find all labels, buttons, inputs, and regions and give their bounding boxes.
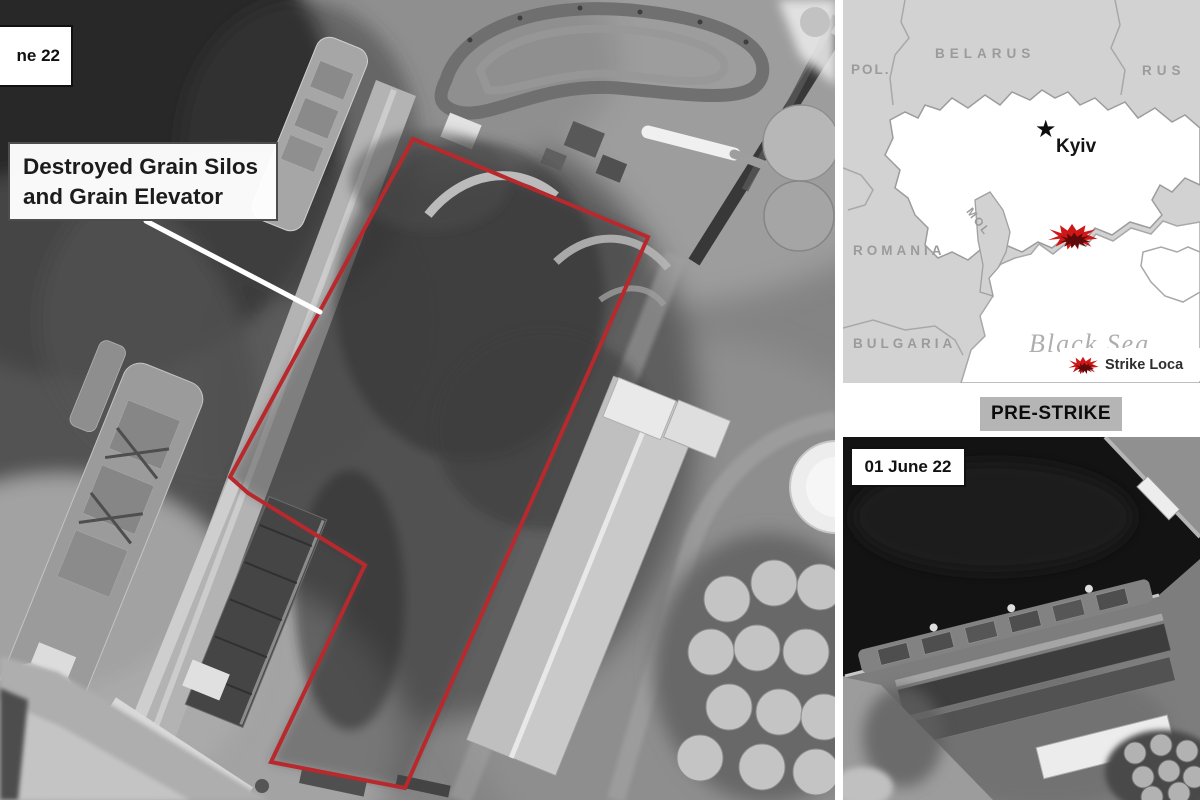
satellite-image-post-strike: ne 22 Destroyed Grain Silos and Grain El…: [0, 0, 835, 800]
date-label-pre-strike-text: 01 June 22: [865, 457, 952, 477]
locator-map: POL. BELARUS RUS ROMANIA BULGARIA MOL ★ …: [843, 0, 1200, 383]
intel-graphic-canvas: ne 22 Destroyed Grain Silos and Grain El…: [0, 0, 1200, 800]
legend-label: Strike Loca: [1105, 357, 1183, 373]
country-label-romania: ROMANIA: [853, 243, 946, 258]
kyiv-star-icon: ★: [1035, 118, 1057, 142]
satellite-scene: [0, 0, 835, 800]
prestrike-scene: [843, 437, 1200, 800]
date-label-post-strike-text: ne 22: [17, 46, 60, 66]
legend-strike-burst-icon: [1067, 354, 1099, 376]
country-label-bulgaria: BULGARIA: [853, 336, 956, 351]
satellite-image-pre-strike: 01 June 22: [843, 437, 1200, 800]
map-legend: Strike Loca: [1060, 348, 1200, 381]
country-label-russia: RUS: [1142, 63, 1186, 78]
pre-strike-badge-text: PRE-STRIKE: [991, 403, 1111, 425]
annotation-callout: Destroyed Grain Silos and Grain Elevator: [8, 142, 278, 221]
annotation-callout-text: Destroyed Grain Silos and Grain Elevator: [23, 154, 258, 209]
pre-strike-badge: PRE-STRIKE: [980, 397, 1122, 431]
storage-tank-tr-2: [764, 181, 834, 251]
date-label-post-strike: ne 22: [0, 25, 73, 87]
country-label-poland: POL.: [851, 62, 891, 77]
date-label-pre-strike: 01 June 22: [850, 447, 966, 487]
kyiv-city-label: Kyiv: [1056, 136, 1096, 158]
country-label-belarus: BELARUS: [935, 46, 1035, 61]
storage-tank-tr-1: [763, 105, 835, 181]
storage-tank-tr-3: [800, 7, 830, 37]
